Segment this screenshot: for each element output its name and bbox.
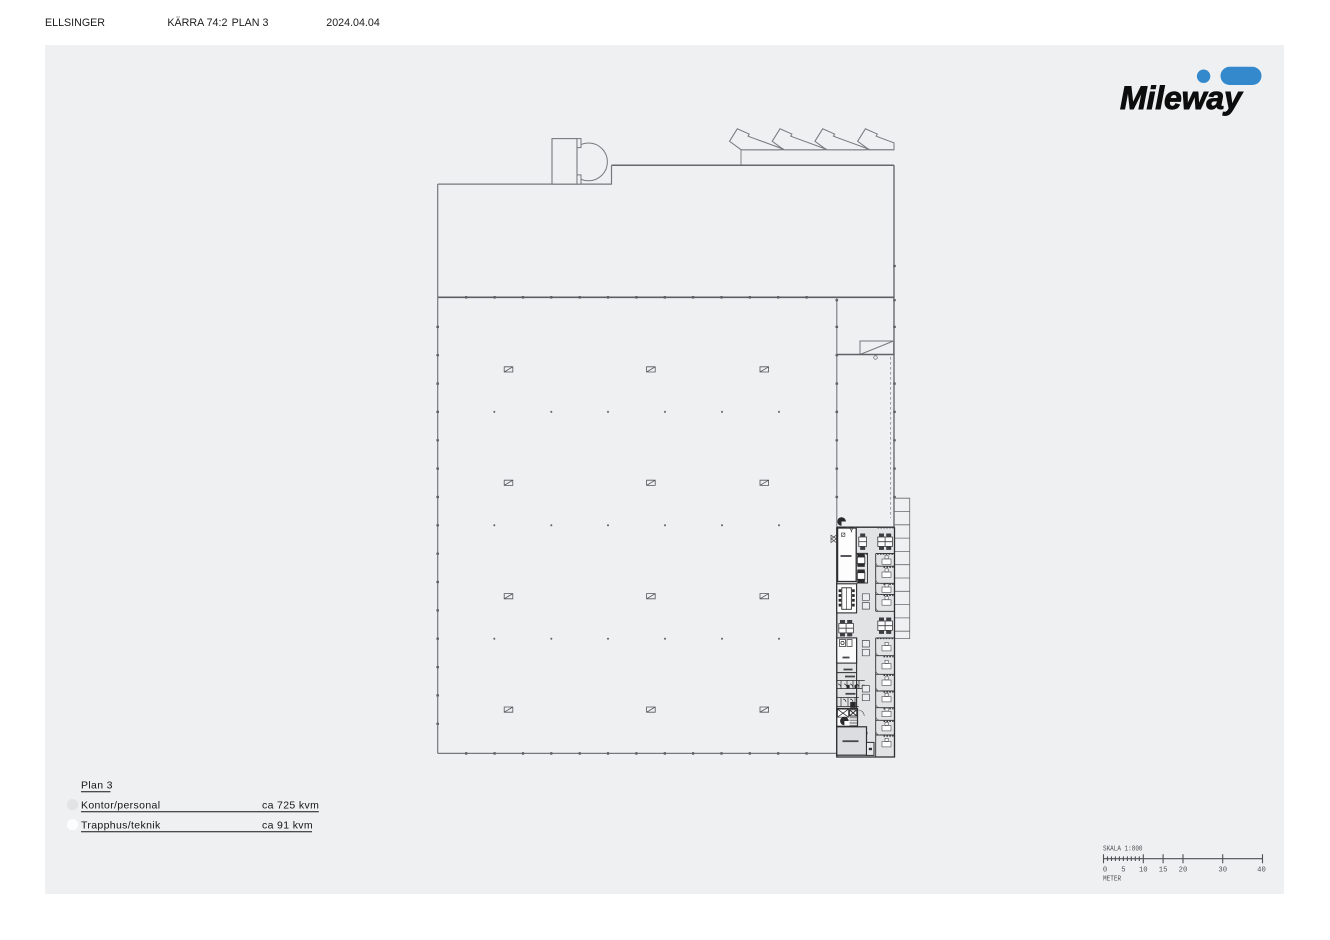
svg-text:15: 15 <box>1159 866 1168 874</box>
svg-text:40: 40 <box>1257 866 1266 874</box>
svg-text:0: 0 <box>1103 866 1107 874</box>
svg-text:20: 20 <box>1179 866 1188 874</box>
svg-text:10: 10 <box>1139 866 1148 874</box>
svg-text:SKALA 1:800: SKALA 1:800 <box>1103 846 1143 854</box>
svg-text:ca 725 kvm: ca 725 kvm <box>262 800 319 812</box>
svg-text:Trapphus/teknik: Trapphus/teknik <box>81 820 161 832</box>
svg-text:2024.04.04: 2024.04.04 <box>326 17 380 29</box>
svg-text:ca 91 kvm: ca 91 kvm <box>262 820 313 832</box>
svg-text:ELLSINGER: ELLSINGER <box>45 17 105 29</box>
svg-text:PLAN 3: PLAN 3 <box>232 17 269 29</box>
svg-text:METER: METER <box>1103 876 1122 884</box>
svg-text:30: 30 <box>1218 866 1227 874</box>
svg-text:Mileway: Mileway <box>1120 80 1244 116</box>
svg-text:5: 5 <box>1121 866 1125 874</box>
svg-text:Kontor/personal: Kontor/personal <box>81 800 160 812</box>
svg-text:Plan 3: Plan 3 <box>81 780 113 792</box>
svg-text:KÄRRA 74:2: KÄRRA 74:2 <box>167 17 227 29</box>
